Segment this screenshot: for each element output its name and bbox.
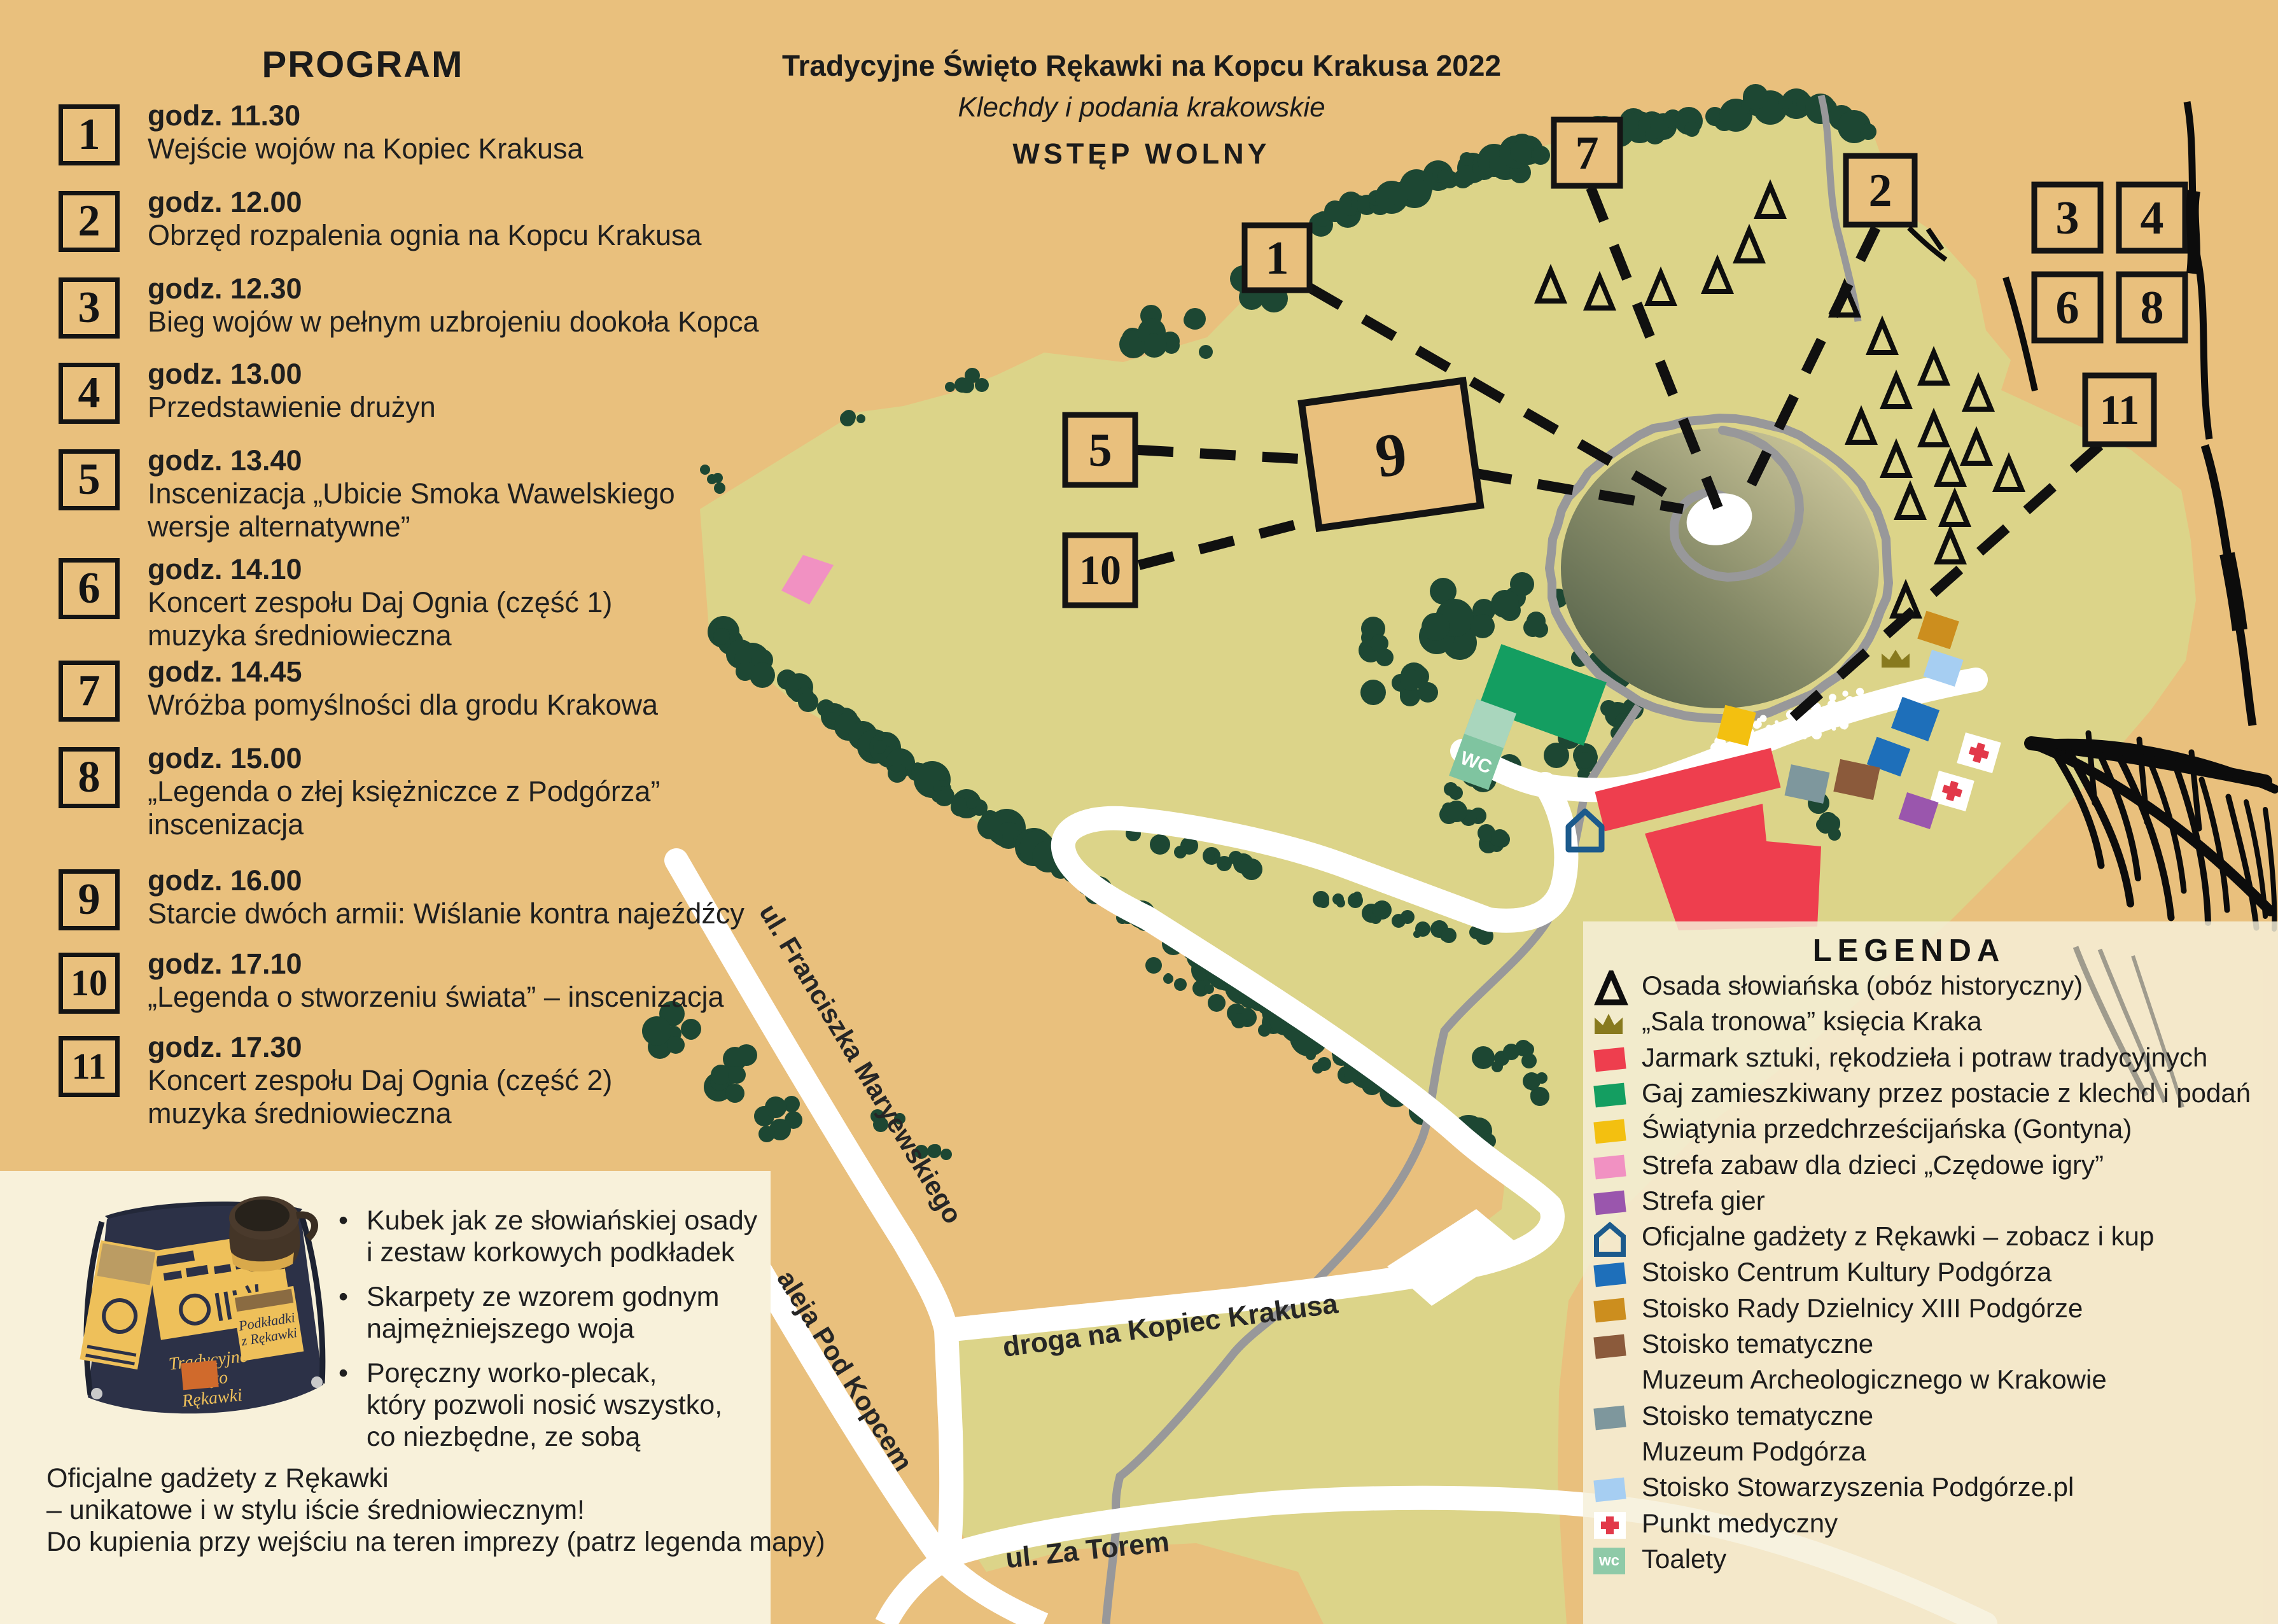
svg-text:3: 3 [2056, 192, 2079, 244]
svg-text:2: 2 [1869, 165, 1892, 217]
svg-text:8: 8 [2141, 282, 2164, 334]
svg-text:11: 11 [2100, 387, 2139, 433]
svg-text:4: 4 [2141, 192, 2164, 244]
svg-text:6: 6 [2056, 282, 2079, 334]
svg-text:5: 5 [1089, 424, 1112, 477]
svg-text:aleja Pod Kopcem: aleja Pod Kopcem [771, 1265, 919, 1476]
svg-text:10: 10 [1079, 547, 1121, 594]
svg-text:1: 1 [1266, 232, 1289, 284]
